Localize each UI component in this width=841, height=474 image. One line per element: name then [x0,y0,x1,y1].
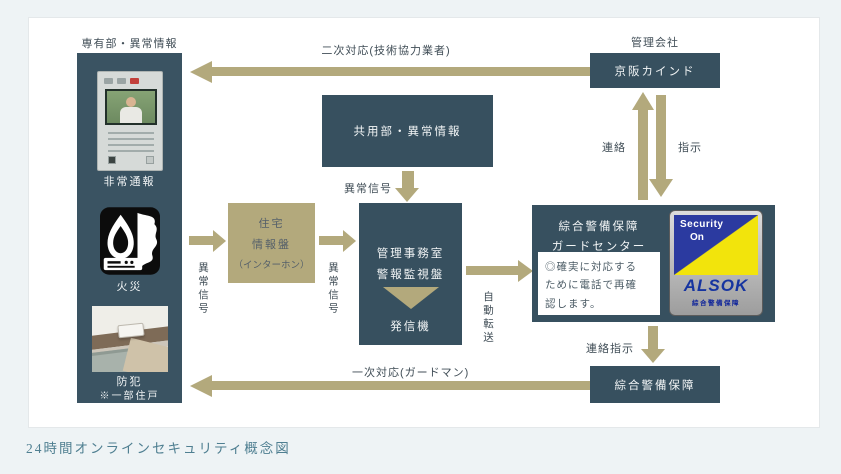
crime-note: ※一部住戸 [77,387,182,402]
office-to-guard-arrowhead [518,260,533,282]
abnormal-signal-label-left: 異常信号 [196,262,211,316]
diagram-caption: 24時間オンラインセキュリティ概念図 [26,437,291,457]
abnormal-signal-label-mid: 異常信号 [326,262,341,316]
secondary-response-arrow [210,67,590,76]
common-area-down-arrowhead [395,188,419,202]
instruction-arrowhead [649,179,673,197]
guard-center-note: ◎確実に対応する ために電話で再確 認します。 [538,252,660,315]
common-area-down-arrow [402,171,414,188]
contact-instruction-arrow [648,326,658,349]
office-to-guard-arrow [466,266,518,275]
residence-to-office-arrow [319,236,343,245]
office-internal-arrow [383,287,439,309]
contact-instruction-arrowhead [641,349,665,363]
instruction-arrow [656,95,666,179]
panel-to-residence-arrow [189,236,213,245]
contact-instruction-label: 連絡指示 [586,340,634,356]
intercom-lower-buttons [108,156,154,164]
security-company-box: 綜合警備保障 [590,366,720,403]
secondary-response-label: 二次対応(技術協力業者) [286,42,486,58]
primary-response-arrow [210,381,590,390]
instruction-label: 指示 [678,139,702,155]
intercom-screen [105,89,157,125]
abnormal-signal-label-top: 異常信号 [344,180,392,196]
private-area-panel: 非常通報 火災 防犯 ※一部住戸 [77,53,182,403]
residence-to-office-arrowhead [343,230,356,252]
private-area-title: 専有部・異常情報 [77,35,182,51]
fire-icon [100,206,160,276]
management-office-box: 管理事務室 警報監視盤 発信機 [359,203,462,345]
primary-response-label: 一次対応(ガードマン) [352,364,469,380]
alsok-sticker: Security On ALSOK 綜合警備保障 [669,210,763,316]
contact-label: 連絡 [602,139,626,155]
contact-arrow [638,110,648,200]
fire-label: 火災 [77,278,182,294]
alsok-security-on-panel: Security On [674,215,758,275]
security-concept-diagram: 専有部・異常情報 非常通報 [0,0,841,474]
auto-transfer-label: 自動転送 [481,291,496,345]
common-area-box: 共用部・異常情報 [322,95,493,167]
primary-response-arrowhead [190,375,212,397]
contact-arrowhead [632,92,654,110]
residence-panel-box: 住宅 情報盤 （インターホン） [228,203,315,283]
alsok-logo: ALSOK 綜合警備保障 [674,275,758,309]
emergency-report-label: 非常通報 [77,173,182,189]
management-company-label: 管理会社 [590,34,720,50]
intercom-label-rows [108,132,154,156]
window-sensor-photo [92,306,168,372]
intercom-photo [97,71,163,171]
intercom-buttons [104,78,139,84]
guard-center-box: 綜合警備保障 ガードセンター ◎確実に対応する ために電話で再確 認します。 S… [532,205,775,322]
secondary-response-arrowhead [190,61,212,83]
panel-to-residence-arrowhead [213,230,226,252]
keihan-box: 京阪カインド [590,53,720,88]
